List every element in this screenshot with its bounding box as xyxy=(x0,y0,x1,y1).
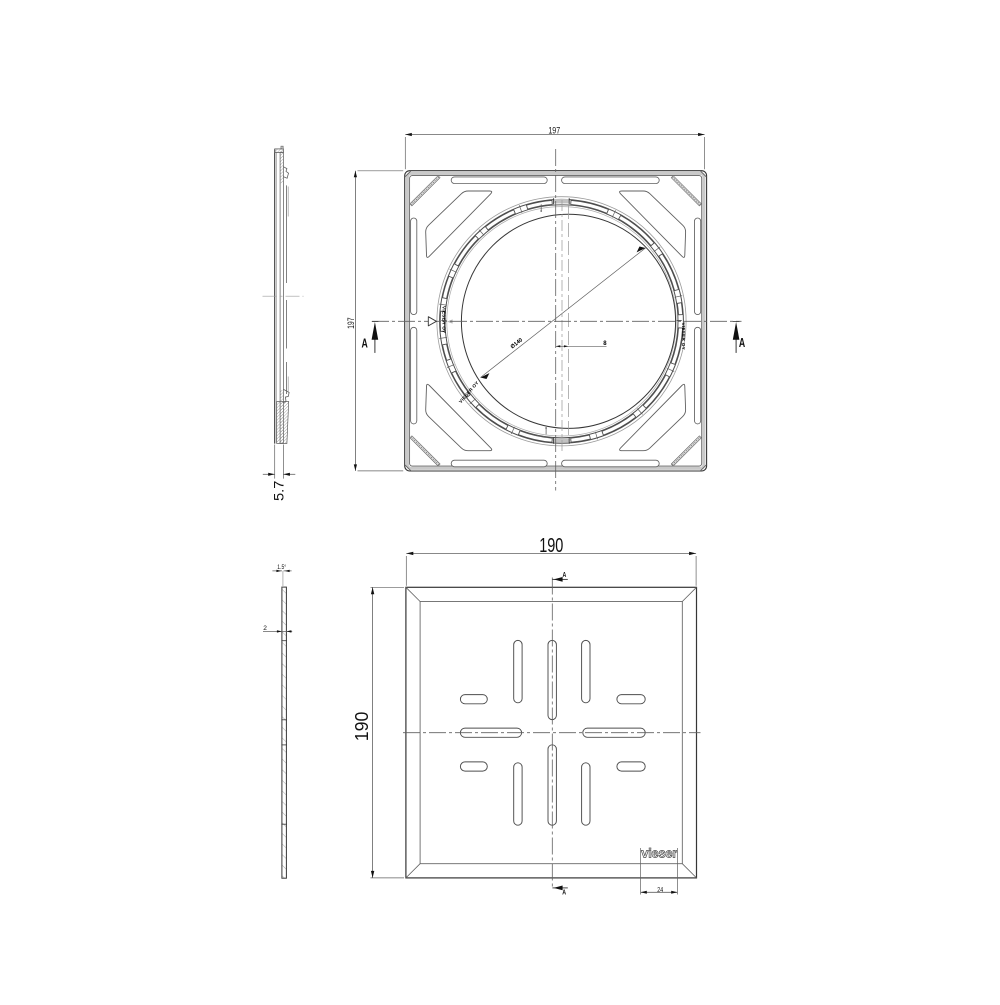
svg-text:2: 2 xyxy=(263,625,267,632)
svg-text:VIESER OY: VIESER OY xyxy=(441,306,446,333)
svg-text:24: 24 xyxy=(657,887,663,894)
svg-text:vieser: vieser xyxy=(641,845,677,860)
svg-text:5.7: 5.7 xyxy=(271,480,287,501)
svg-text:A: A xyxy=(362,336,369,351)
svg-text:VIESER OY: VIESER OY xyxy=(681,323,686,350)
svg-text:197: 197 xyxy=(548,125,560,135)
svg-text:197: 197 xyxy=(346,318,356,329)
svg-text:1.5°: 1.5° xyxy=(277,563,286,571)
svg-text:A: A xyxy=(563,570,567,579)
svg-text:190: 190 xyxy=(539,535,563,557)
svg-text:A: A xyxy=(562,887,566,896)
svg-text:190: 190 xyxy=(352,712,372,742)
svg-text:A: A xyxy=(739,335,746,350)
